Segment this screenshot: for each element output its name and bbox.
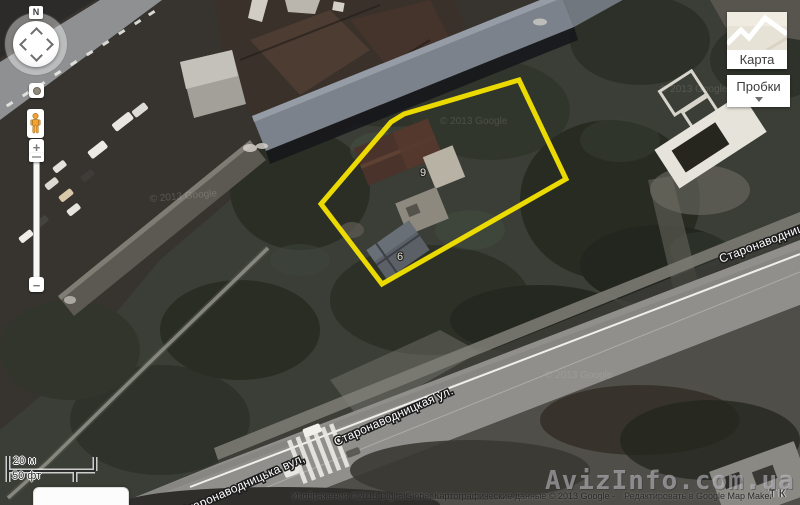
house-number-6: 6	[397, 251, 403, 263]
compass-north-button[interactable]: N	[29, 6, 43, 19]
imagery-watermark-text: © 2013 Google	[545, 370, 613, 381]
traffic-label: Пробки	[727, 79, 790, 94]
attribution-bar: Изображения ©2013 DigitalGlobe, Картогра…	[292, 491, 773, 501]
zoom-slider-track[interactable]	[33, 162, 40, 277]
street-view-pegman-button[interactable]	[27, 109, 44, 138]
scale-metric-label: 20 м	[13, 455, 36, 467]
traffic-button[interactable]: Пробки	[727, 75, 790, 107]
zoom-slider-handle[interactable]	[29, 153, 44, 162]
bottom-left-panel	[33, 487, 129, 505]
attribution-fragment: ТК	[769, 488, 788, 500]
zoom-in-button[interactable]: +	[29, 139, 44, 154]
pan-down-arrow-icon[interactable]	[30, 49, 43, 62]
chevron-down-icon	[755, 97, 763, 102]
map-type-button[interactable]: Карта	[727, 12, 787, 69]
zoom-handle-grip	[32, 156, 41, 158]
map-preview-thumbnail	[727, 12, 787, 50]
pan-left-arrow-icon[interactable]	[19, 38, 32, 51]
pan-control[interactable]	[5, 13, 67, 75]
pegman-icon	[30, 113, 41, 134]
map-viewport: © 2013 Google © 2013 Google © 2013 Googl…	[0, 0, 800, 505]
map-maker-edit-link[interactable]: Редактировать в Google Map Maker	[624, 491, 773, 501]
map-type-label: Карта	[727, 52, 787, 67]
house-number-9: 9	[420, 167, 426, 179]
zoom-out-button[interactable]: −	[29, 277, 44, 292]
pan-right-arrow-icon[interactable]	[41, 38, 54, 51]
imagery-watermark-text: © 2013 Google	[660, 84, 728, 95]
pan-up-arrow-icon[interactable]	[30, 27, 43, 40]
attribution-text: Изображения ©2013 DigitalGlobe, Картогра…	[292, 491, 615, 501]
center-dot-icon	[33, 87, 41, 95]
pan-control-dial[interactable]	[13, 21, 59, 67]
scale-imperial-label: 50 фт	[12, 470, 41, 482]
imagery-watermark-text: © 2013 Google	[440, 116, 508, 127]
satellite-imagery[interactable]: © 2013 Google © 2013 Google © 2013 Googl…	[0, 0, 800, 505]
center-map-button[interactable]	[29, 83, 44, 98]
zoom-out-label: −	[33, 278, 41, 293]
